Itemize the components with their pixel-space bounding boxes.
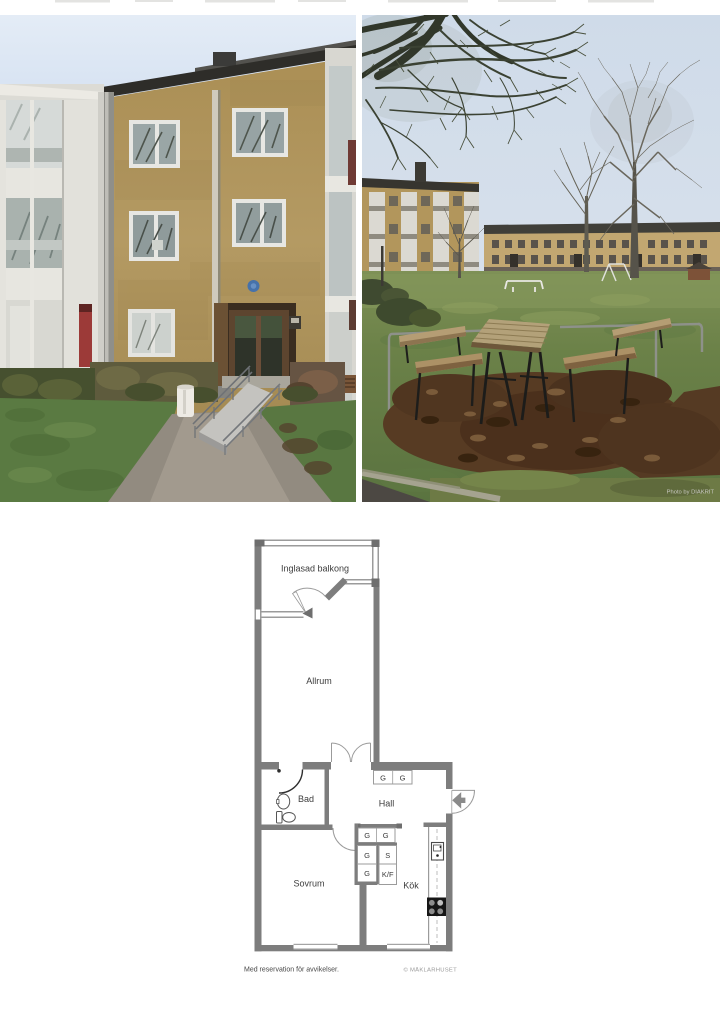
svg-text:Med reservation för avvikelser: Med reservation för avvikelser. bbox=[244, 967, 339, 974]
svg-text:Hall: Hall bbox=[379, 799, 395, 809]
svg-text:Photo by DIAKRIT: Photo by DIAKRIT bbox=[667, 490, 715, 496]
svg-text:G: G bbox=[383, 831, 389, 840]
svg-text:G: G bbox=[364, 851, 370, 860]
svg-text:G: G bbox=[364, 831, 370, 840]
svg-text:Bad: Bad bbox=[298, 794, 314, 804]
svg-text:K/F: K/F bbox=[382, 870, 394, 879]
svg-text:S: S bbox=[385, 851, 390, 860]
svg-text:Allrum: Allrum bbox=[306, 676, 332, 686]
svg-text:Kök: Kök bbox=[403, 881, 419, 891]
svg-text:G: G bbox=[400, 773, 406, 782]
svg-text:G: G bbox=[380, 773, 386, 782]
svg-text:© MÄKLARHUSET: © MÄKLARHUSET bbox=[404, 966, 458, 973]
svg-text:Sovrum: Sovrum bbox=[293, 879, 324, 889]
svg-text:Inglasad balkong: Inglasad balkong bbox=[281, 564, 349, 574]
svg-text:G: G bbox=[364, 869, 370, 878]
